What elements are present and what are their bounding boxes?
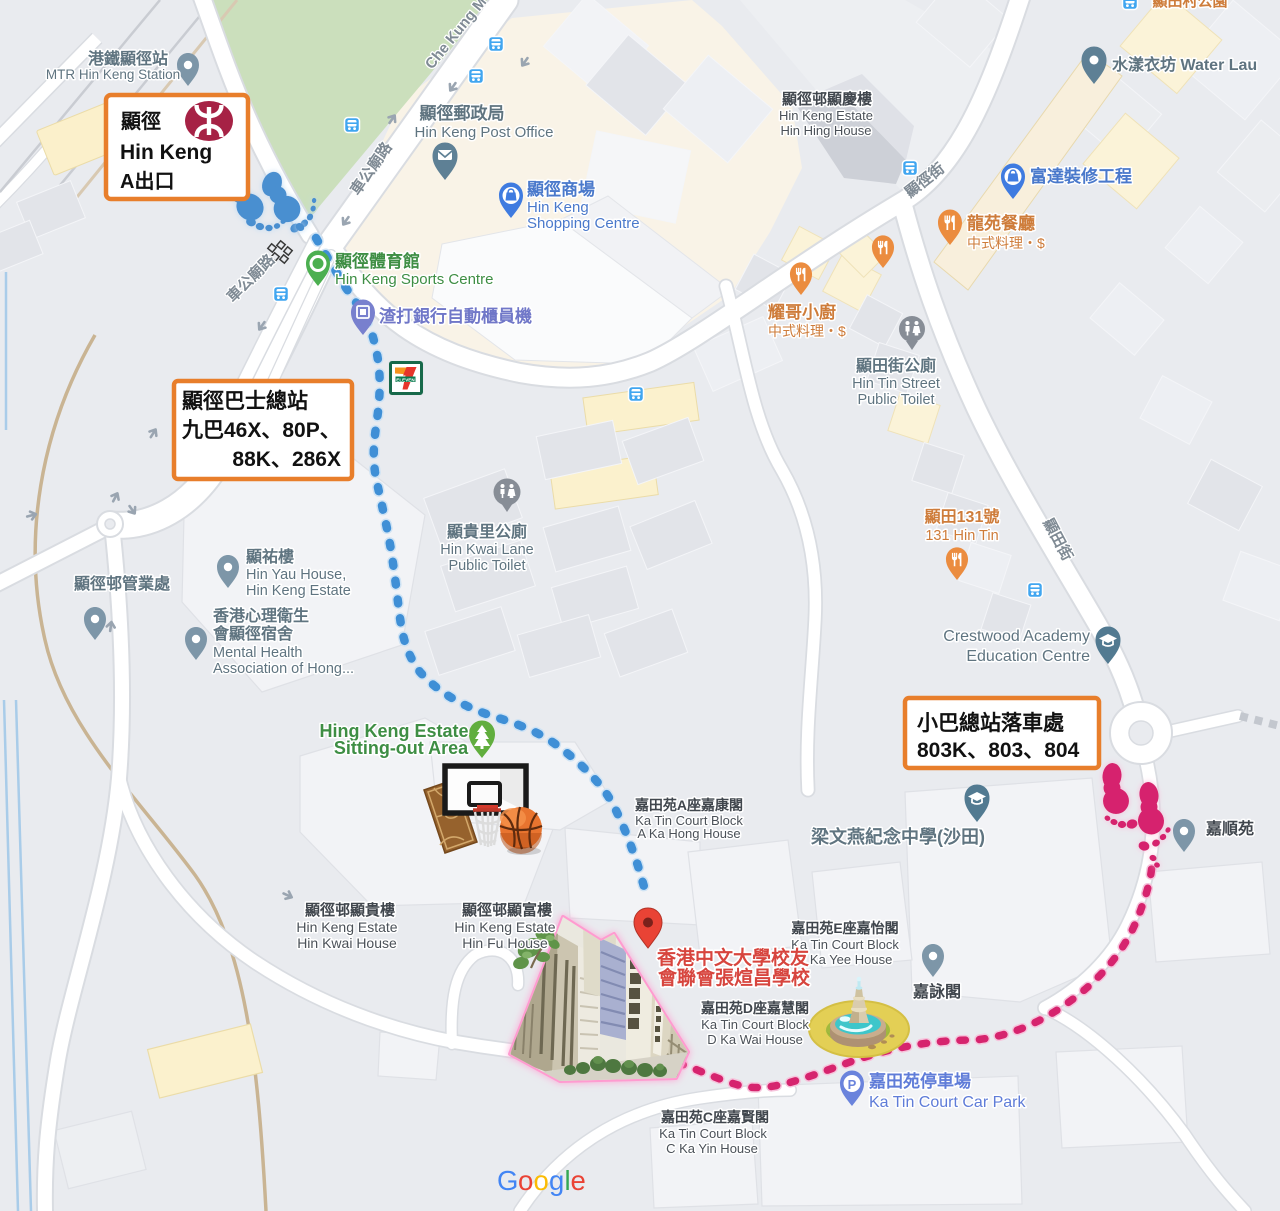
svg-text:顯徑邨顯富樓: 顯徑邨顯富樓 xyxy=(462,901,552,919)
svg-text:Hin Keng Estate: Hin Keng Estate xyxy=(296,919,397,935)
svg-text:顯徑商場: 顯徑商場 xyxy=(527,179,595,199)
svg-text:G: G xyxy=(497,1165,518,1196)
svg-text:E Ka Yee House: E Ka Yee House xyxy=(798,952,893,967)
svg-text:Hin Keng Estate: Hin Keng Estate xyxy=(454,919,555,935)
svg-text:Hin Tin Street: Hin Tin Street xyxy=(852,376,940,392)
svg-text:顯徑巴士總站: 顯徑巴士總站 xyxy=(182,389,308,413)
svg-text:Hin Keng Sports Centre: Hin Keng Sports Centre xyxy=(335,271,493,288)
svg-text:Crestwood Academy: Crestwood Academy xyxy=(943,628,1090,645)
svg-text:嘉詠閣: 嘉詠閣 xyxy=(912,982,961,1001)
svg-text:渣打銀行自動櫃員機: 渣打銀行自動櫃員機 xyxy=(379,306,532,326)
svg-text:顯田131號: 顯田131號 xyxy=(925,507,1000,526)
svg-text:港鐵顯徑站: 港鐵顯徑站 xyxy=(88,49,168,68)
svg-text:Hin Keng Estate: Hin Keng Estate xyxy=(779,108,873,123)
svg-text:顯祐樓: 顯祐樓 xyxy=(246,547,294,566)
svg-text:Hin Fu House: Hin Fu House xyxy=(462,935,548,951)
svg-text:Shopping Centre: Shopping Centre xyxy=(527,215,640,232)
svg-text:A出口: A出口 xyxy=(120,170,174,193)
svg-text:Public Toilet: Public Toilet xyxy=(857,392,934,408)
svg-text:會聯會張煊昌學校: 會聯會張煊昌學校 xyxy=(658,966,811,989)
svg-text:小巴總站落車處: 小巴總站落車處 xyxy=(917,711,1064,735)
svg-text:會顯徑宿舍: 會顯徑宿舍 xyxy=(212,624,294,643)
svg-text:Hin Kwai House: Hin Kwai House xyxy=(297,935,397,951)
svg-text:水漾衣坊 Water Lau: 水漾衣坊 Water Lau xyxy=(1112,55,1257,74)
svg-text:龍苑餐廳: 龍苑餐廳 xyxy=(967,213,1035,233)
svg-text:顯田街公廁: 顯田街公廁 xyxy=(856,356,936,375)
svg-text:C Ka Yin House: C Ka Yin House xyxy=(666,1141,758,1156)
svg-text:耀哥小廚: 耀哥小廚 xyxy=(768,302,836,322)
svg-text:香港中文大學校友: 香港中文大學校友 xyxy=(656,946,809,969)
svg-text:Hin Keng: Hin Keng xyxy=(120,141,212,164)
svg-text:Sitting-out Area: Sitting-out Area xyxy=(334,738,469,758)
svg-text:MTR Hin Keng Station: MTR Hin Keng Station xyxy=(46,67,180,82)
svg-text:顯徑郵政局: 顯徑郵政局 xyxy=(420,103,505,123)
svg-text:Public Toilet: Public Toilet xyxy=(448,558,525,574)
svg-text:Hin Keng: Hin Keng xyxy=(527,199,589,216)
svg-text:Hin Keng Post Office: Hin Keng Post Office xyxy=(415,124,554,141)
svg-text:梁文燕紀念中學(沙田): 梁文燕紀念中學(沙田) xyxy=(810,826,985,847)
svg-text:嘉田苑A座嘉康閣: 嘉田苑A座嘉康閣 xyxy=(634,797,743,813)
svg-text:e: e xyxy=(571,1165,586,1196)
svg-text:Mental Health: Mental Health xyxy=(213,645,302,661)
svg-text:顯徑邨管業處: 顯徑邨管業處 xyxy=(74,574,171,593)
svg-text:顯徑: 顯徑 xyxy=(121,109,161,133)
svg-text:ELEVEN: ELEVEN xyxy=(396,377,415,382)
svg-text:香港心理衛生: 香港心理衛生 xyxy=(212,606,309,625)
svg-text:Education Centre: Education Centre xyxy=(966,648,1090,665)
svg-text:嘉田苑D座嘉慧閣: 嘉田苑D座嘉慧閣 xyxy=(700,1000,809,1016)
svg-text:g: g xyxy=(549,1165,564,1196)
svg-text:富達裝修工程: 富達裝修工程 xyxy=(1030,166,1132,186)
svg-text:顯徑邨顯貴樓: 顯徑邨顯貴樓 xyxy=(305,901,395,919)
svg-text:o: o xyxy=(534,1165,549,1196)
svg-text:Ka Tin Court Block: Ka Tin Court Block xyxy=(659,1126,767,1141)
svg-text:D Ka Wai House: D Ka Wai House xyxy=(707,1032,803,1047)
svg-text:P: P xyxy=(848,1077,857,1092)
svg-text:九巴46X、80P、: 九巴46X、80P、 xyxy=(181,419,341,442)
svg-text:A Ka Hong House: A Ka Hong House xyxy=(637,826,740,841)
svg-text:嘉田苑E座嘉怡閣: 嘉田苑E座嘉怡閣 xyxy=(790,920,898,936)
svg-text:o: o xyxy=(518,1165,533,1196)
svg-text:嘉田苑C座嘉賢閣: 嘉田苑C座嘉賢閣 xyxy=(660,1109,769,1125)
svg-text:嘉順苑: 嘉順苑 xyxy=(1205,819,1254,838)
svg-text:Hin Keng Estate: Hin Keng Estate xyxy=(246,583,351,599)
svg-text:顯貴里公廁: 顯貴里公廁 xyxy=(447,522,527,541)
svg-text:嘉田苑停車場: 嘉田苑停車場 xyxy=(868,1071,971,1091)
svg-text:顯徑體育館: 顯徑體育館 xyxy=(335,251,420,271)
svg-text:88K、286X: 88K、286X xyxy=(232,448,341,471)
svg-text:Ka Tin Court Block: Ka Tin Court Block xyxy=(701,1017,809,1032)
svg-text:Hin Kwai Lane: Hin Kwai Lane xyxy=(440,542,534,558)
svg-text:顯徑邨顯慶樓: 顯徑邨顯慶樓 xyxy=(782,90,872,108)
svg-text:Association of Hong...: Association of Hong... xyxy=(213,661,354,677)
svg-text:顯田村公園: 顯田村公園 xyxy=(1152,0,1227,10)
svg-text:Hin Hing House: Hin Hing House xyxy=(780,123,871,138)
svg-text:Hin Yau House,: Hin Yau House, xyxy=(246,567,346,583)
svg-text:Ka Tin Court Car Park: Ka Tin Court Car Park xyxy=(869,1094,1027,1111)
svg-text:803K、803、804: 803K、803、804 xyxy=(917,739,1080,762)
svg-text:中式料理・$: 中式料理・$ xyxy=(967,235,1045,251)
svg-text:中式料理・$: 中式料理・$ xyxy=(768,323,846,339)
svg-text:131 Hin Tin: 131 Hin Tin xyxy=(925,528,998,544)
